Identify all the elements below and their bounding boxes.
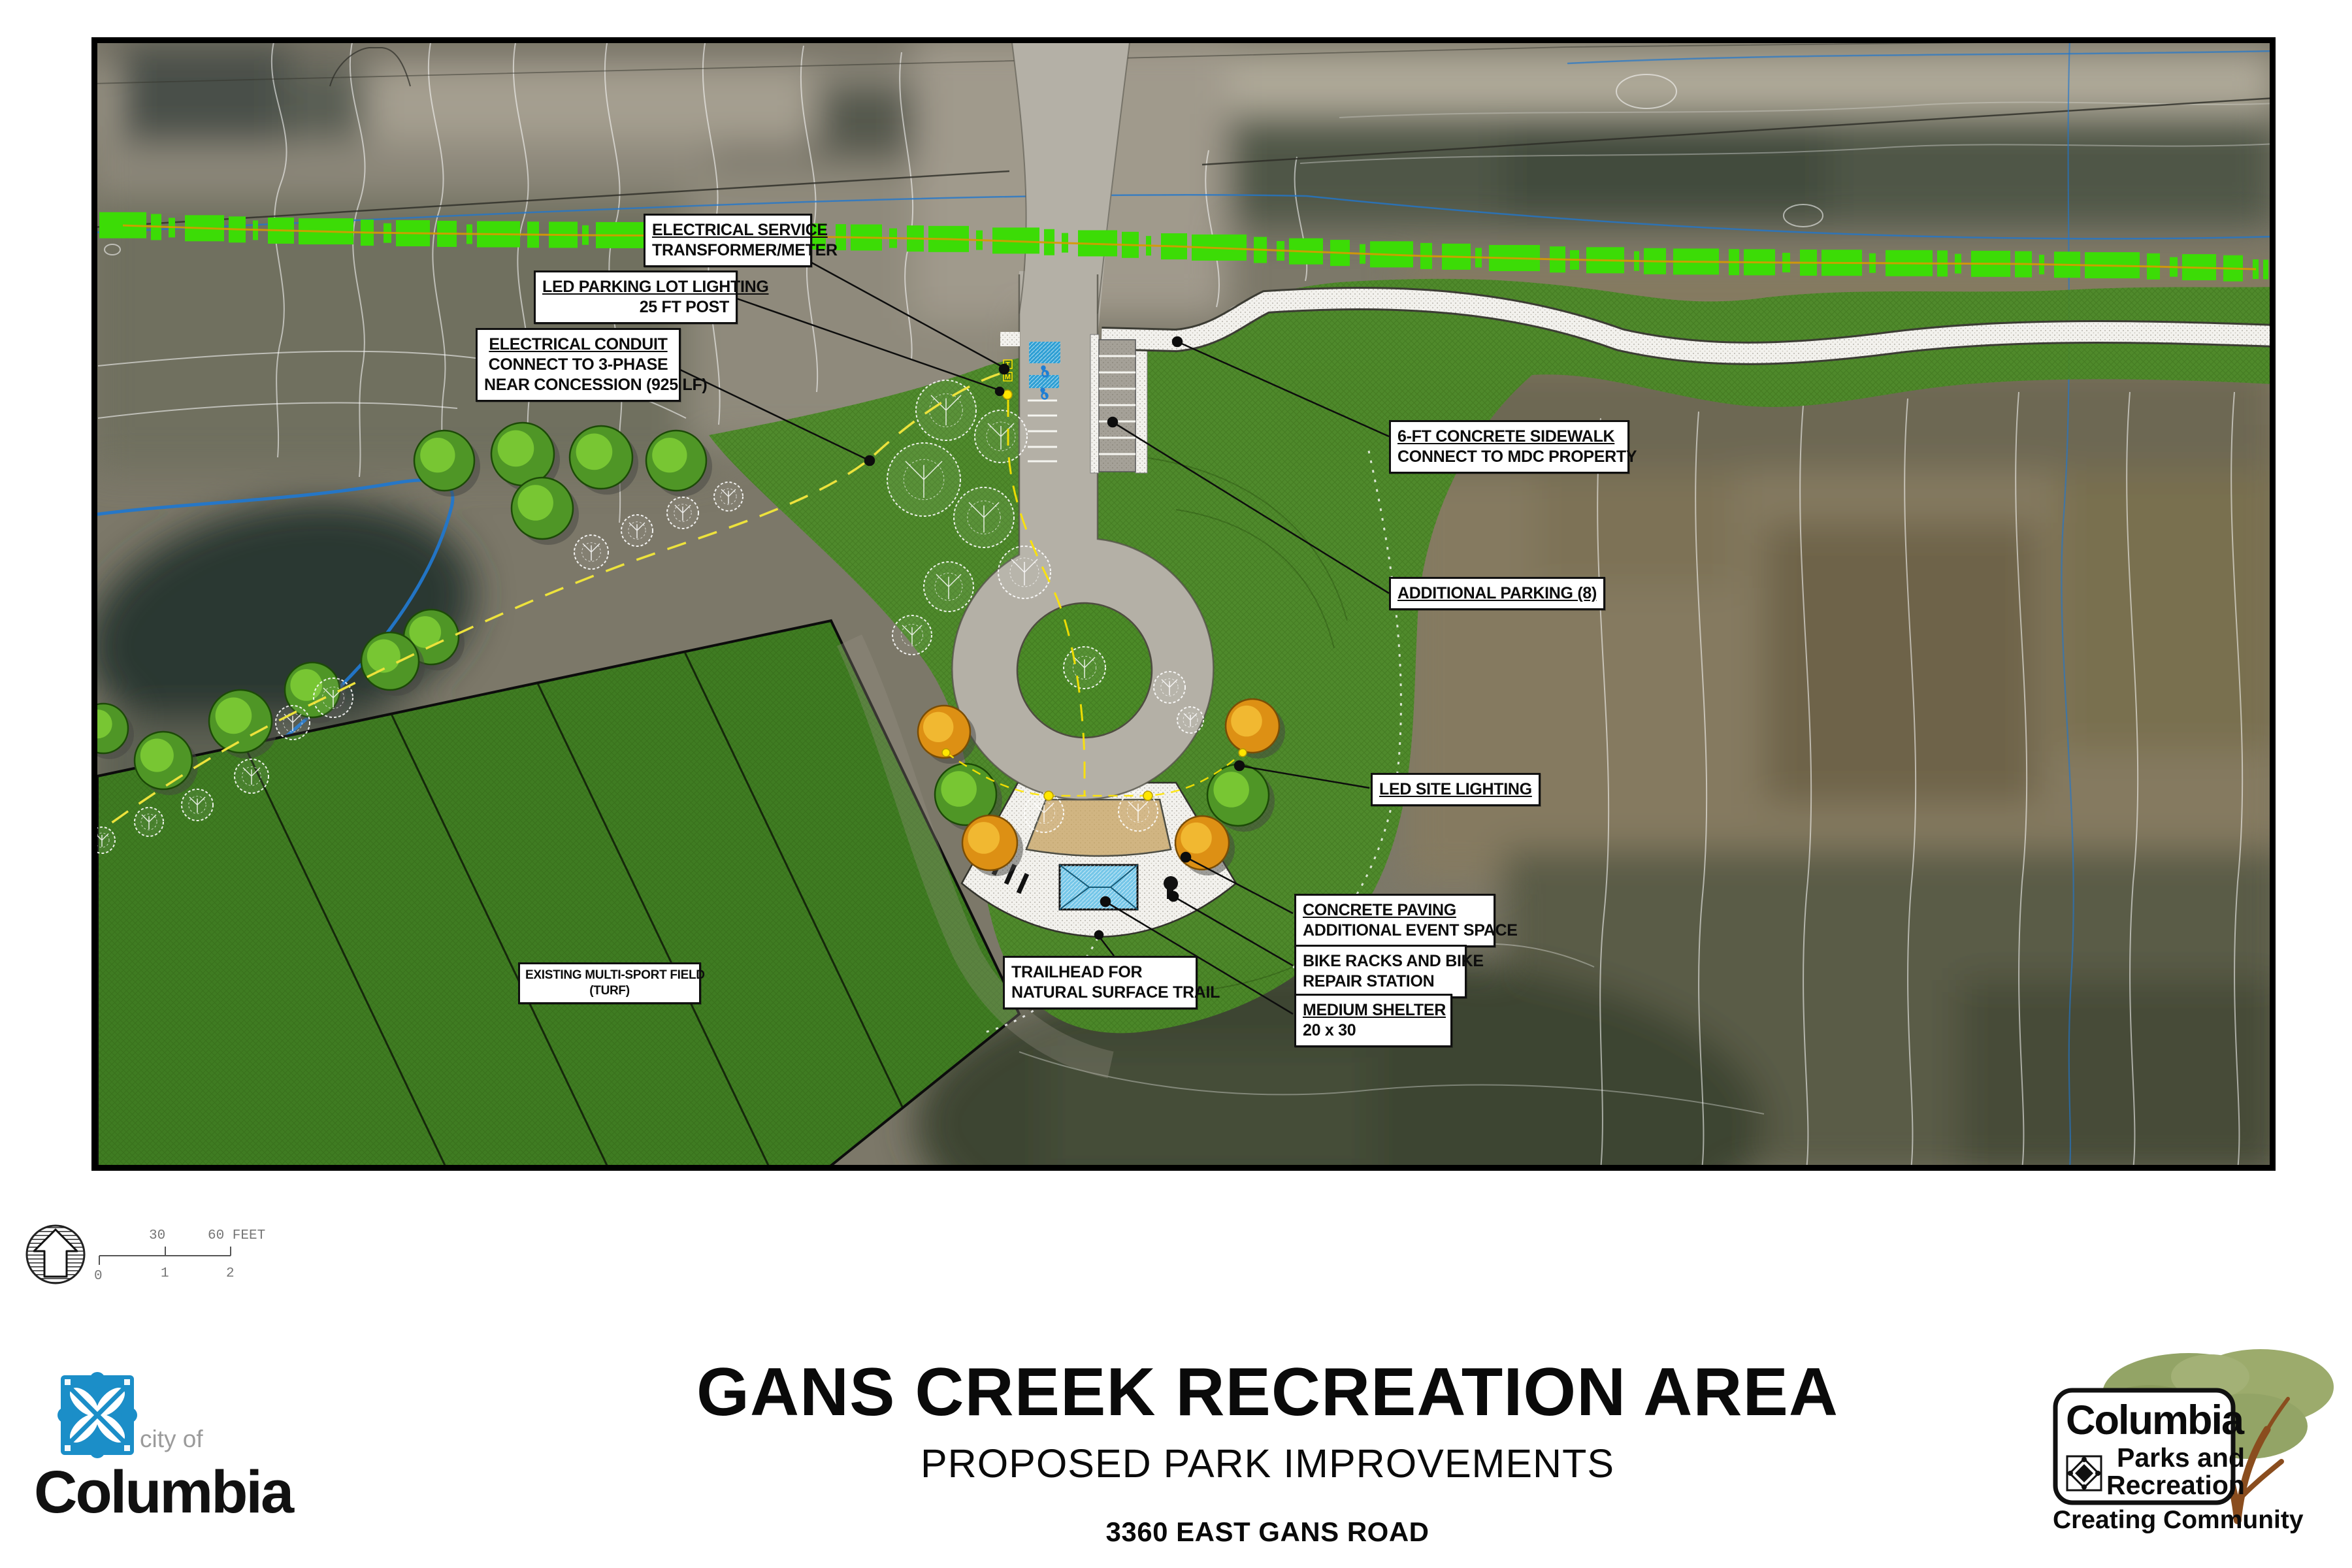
callout-line: NATURAL SURFACE TRAIL: [1011, 983, 1189, 1003]
callout-line: BIKE RACKS AND BIKE: [1303, 951, 1458, 972]
scale-label-2: 2: [226, 1266, 235, 1281]
callout-line: LED PARKING LOT LIGHTING: [542, 277, 729, 297]
callout-led-parking-lot-lighting: LED PARKING LOT LIGHTING 25 FT POST: [534, 270, 738, 324]
callout-multi-sport-field: EXISTING MULTI-SPORT FIELD (TURF): [518, 962, 701, 1004]
sheet-address: 3360 EAST GANS ROAD: [614, 1516, 1921, 1548]
callout-bike-racks: BIKE RACKS AND BIKE REPAIR STATION: [1294, 945, 1467, 998]
scale-label-60-feet: 60 FEET: [208, 1228, 265, 1243]
callout-line: CONCRETE PAVING: [1303, 900, 1487, 921]
callout-line: MEDIUM SHELTER: [1303, 1000, 1444, 1021]
callout-trailhead: TRAILHEAD FOR NATURAL SURFACE TRAIL: [1003, 956, 1198, 1009]
city-logo-mark: [46, 1364, 149, 1467]
sheet-title: GANS CREEK RECREATION AREA: [614, 1354, 1921, 1431]
callout-line: TRANSFORMER/METER: [652, 240, 804, 261]
parks-logo-tagline: Creating Community: [2053, 1506, 2304, 1534]
callout-line: ADDITIONAL PARKING (8): [1397, 583, 1597, 604]
parks-logo-line2: Parks and: [2117, 1443, 2245, 1473]
callout-concrete-sidewalk: 6-FT CONCRETE SIDEWALK CONNECT TO MDC PR…: [1389, 420, 1629, 474]
callout-line: ELECTRICAL CONDUIT: [484, 335, 672, 355]
site-plan-map: T M: [91, 37, 2276, 1171]
site-plan-sheet: { "title_block": { "title": "GANS CREEK …: [0, 0, 2352, 1568]
callout-line: 6-FT CONCRETE SIDEWALK: [1397, 427, 1621, 447]
callout-line: 20 x 30: [1303, 1021, 1444, 1041]
city-logo-name: Columbia: [34, 1459, 295, 1526]
parks-logo-name: Columbia: [2066, 1397, 2245, 1443]
north-arrow-and-scale: 30 60 FEET 0 1 2: [0, 1214, 340, 1299]
callout-line: TRAILHEAD FOR: [1011, 962, 1189, 983]
callout-line: 25 FT POST: [542, 297, 729, 318]
scale-label-0: 0: [94, 1269, 103, 1284]
callout-line: ELECTRICAL SERVICE: [652, 220, 804, 240]
parks-and-recreation-logo: Columbia Parks and Recreation Creating C…: [2044, 1316, 2351, 1545]
scale-label-1: 1: [161, 1266, 169, 1281]
callout-concrete-paving: CONCRETE PAVING ADDITIONAL EVENT SPACE: [1294, 894, 1495, 947]
callout-electrical-service: ELECTRICAL SERVICE TRANSFORMER/METER: [644, 214, 812, 267]
city-logo-prefix: city of: [140, 1426, 203, 1452]
parks-logo-pinwheel-icon: [2067, 1456, 2101, 1490]
callout-line: LED SITE LIGHTING: [1379, 779, 1532, 800]
callout-line: EXISTING MULTI-SPORT FIELD: [525, 968, 694, 983]
scale-bar: [99, 1247, 231, 1265]
additional-parking-lot: [1099, 340, 1135, 472]
medium-shelter: [1060, 865, 1137, 909]
callout-line: ADDITIONAL EVENT SPACE: [1303, 921, 1487, 941]
parks-logo-line3: Recreation: [2106, 1470, 2245, 1500]
title-block: GANS CREEK RECREATION AREA PROPOSED PARK…: [614, 1354, 1921, 1548]
callout-led-site-lighting: LED SITE LIGHTING: [1371, 773, 1541, 806]
callout-line: CONNECT TO 3-PHASE: [484, 355, 672, 375]
city-of-columbia-logo: city of Columbia: [26, 1362, 340, 1545]
north-scale-graphics: [0, 1214, 340, 1299]
callout-line: REPAIR STATION: [1303, 972, 1458, 992]
meter-label: M: [1005, 374, 1011, 382]
scale-label-30: 30: [149, 1228, 165, 1243]
callout-line: (TURF): [525, 983, 694, 999]
callout-electrical-conduit: ELECTRICAL CONDUIT CONNECT TO 3-PHASE NE…: [476, 328, 681, 402]
sheet-subtitle: PROPOSED PARK IMPROVEMENTS: [614, 1441, 1921, 1486]
callout-additional-parking: ADDITIONAL PARKING (8): [1389, 577, 1605, 610]
callout-line: CONNECT TO MDC PROPERTY: [1397, 447, 1621, 467]
north-arrow-icon: [27, 1226, 84, 1283]
callout-medium-shelter: MEDIUM SHELTER 20 x 30: [1294, 994, 1452, 1047]
callout-line: NEAR CONCESSION (925 LF): [484, 375, 672, 395]
